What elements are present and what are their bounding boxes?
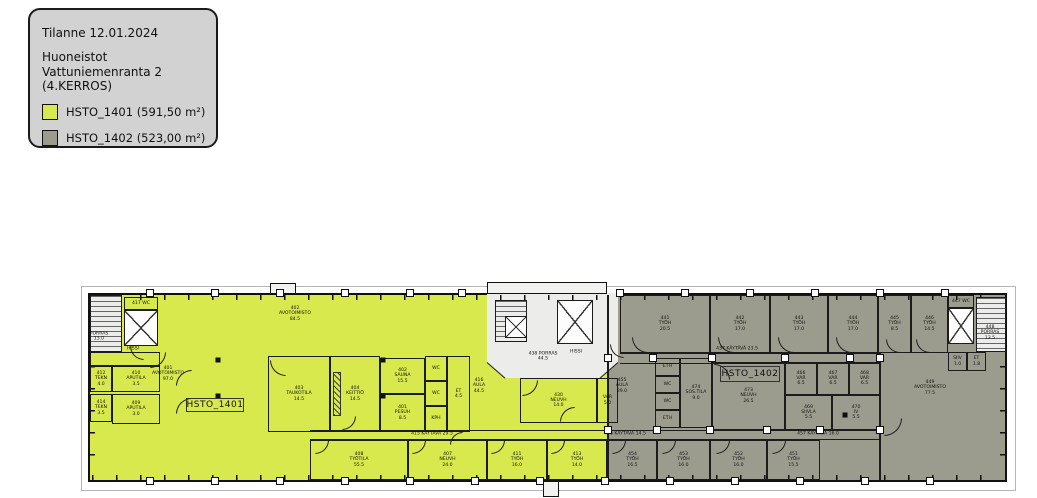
room: 444TYÖH17.0 [828, 295, 878, 353]
room: 443TYÖH17.0 [770, 295, 828, 353]
area-label: 448PORRAS13.5 [981, 325, 1000, 341]
status-date: Tilanne 12.01.2024 [42, 26, 216, 40]
area-label: 438 PORRAS44.5 [529, 352, 558, 363]
room-label: 417 WC [132, 301, 150, 306]
interior-column [216, 358, 221, 363]
room: SIIV1.0 [948, 352, 967, 371]
room-label: 6.5 [797, 381, 804, 386]
column-marker [926, 477, 934, 485]
legend-items: HSTO_1401 (591,50 m²)HSTO_1402 (523,00 m… [42, 104, 216, 146]
room-label: 3.5 [97, 411, 104, 416]
room-label: 14.5 [924, 327, 934, 332]
area-label-line: 415 KÄYTÄVÄ 29.5 [411, 431, 453, 436]
interior-column [381, 358, 386, 363]
room-label: 17.0 [848, 327, 858, 332]
room: 401PESUH8.5 [380, 394, 425, 432]
room [124, 310, 158, 346]
room-label: 3.0 [132, 412, 139, 417]
legend-item-label: HSTO_1401 (591,50 m²) [66, 105, 205, 119]
column-marker [876, 426, 884, 434]
room-label: 5.5 [852, 415, 859, 420]
room: 469SIIVLA5.5 [785, 395, 832, 430]
column-marker [811, 289, 819, 297]
room-label: 16.5 [627, 463, 637, 468]
room: ET4.5 [447, 356, 470, 432]
room: ET1.8 [967, 352, 986, 371]
room: 470IV5.5 [832, 395, 880, 430]
room: 414TEKN3.5 [90, 394, 112, 422]
interior-column [381, 394, 386, 399]
column-marker [211, 289, 219, 297]
room: ETH [655, 358, 680, 376]
room: WC [655, 376, 680, 393]
room: 409APUTILA3.0 [112, 394, 160, 424]
room-label: 17.0 [794, 327, 804, 332]
column-marker [471, 477, 479, 485]
floor-plan-page: Tilanne 12.01.2024 Huoneistot Vattunieme… [0, 0, 1037, 498]
column-marker [708, 354, 716, 362]
room-label: WC [664, 382, 672, 387]
room-label: 55.5 [354, 463, 364, 468]
column-marker [341, 477, 349, 485]
column-marker [146, 289, 154, 297]
legend-item-label: HSTO_1402 (523,00 m²) [66, 131, 205, 145]
area-label: 455AULA29.0 [616, 378, 628, 394]
column-marker [604, 426, 612, 434]
column-marker [406, 477, 414, 485]
area-label-line: HISSI [570, 349, 582, 354]
column-marker [781, 354, 789, 362]
column-marker [276, 477, 284, 485]
room-label: 16.0 [733, 463, 743, 468]
room-label: WC [432, 391, 440, 396]
column-marker [653, 426, 661, 434]
column-marker [649, 354, 657, 362]
entrance-stub [543, 481, 559, 497]
room-label: 4.5 [455, 394, 462, 399]
area-label-line: 84.5 [279, 317, 311, 322]
room-label: 15.5 [788, 463, 798, 468]
legend-item-HSTO_1401: HSTO_1401 (591,50 m²) [42, 104, 216, 120]
column-marker [763, 426, 771, 434]
area-label-line: AULA [616, 383, 628, 388]
column-marker [601, 477, 609, 485]
room: 412TEKN4.0 [90, 366, 112, 392]
room: WC [425, 356, 447, 381]
room-label: 15.5 [397, 379, 407, 384]
legend-spacer [42, 40, 216, 50]
area-label: HISSI [570, 349, 582, 354]
room: 467VAR6.5 [817, 362, 849, 395]
legend-title-line-1: Huoneistot [42, 50, 216, 64]
room-label: 5.5 [805, 415, 812, 420]
room [948, 308, 974, 344]
room-label: 24.0 [442, 463, 452, 468]
room: 447 WC [948, 295, 974, 308]
room [557, 300, 593, 344]
area-label-line: 13.5 [981, 336, 1000, 341]
room: 417 WC [124, 297, 158, 310]
room-label: WC [432, 366, 440, 371]
column-marker [211, 477, 219, 485]
room: WC [655, 393, 680, 410]
room-label: 14.5 [350, 397, 360, 402]
area-label-line: 44.5 [529, 357, 558, 362]
room [90, 295, 122, 352]
column-marker [146, 477, 154, 485]
room-label: 8.5 [891, 327, 898, 332]
room-label: ETH [663, 416, 672, 421]
area-label-line: 44.5 [473, 389, 485, 394]
room: WC [425, 381, 447, 406]
column-marker [941, 289, 949, 297]
room-label: 5.0 [604, 401, 611, 406]
column-marker [458, 289, 466, 297]
column-marker [604, 354, 612, 362]
room-label: 20.5 [660, 327, 670, 332]
area-label: 402AVOTOIMISTO84.5 [279, 306, 311, 322]
legend-swatch [42, 130, 58, 146]
apartment-id-label: HSTO_1401 [186, 398, 244, 412]
area-label-line: 77.5 [914, 391, 946, 396]
room-label: 8.5 [399, 416, 406, 421]
apartment-id-label: HSTO_1402 [720, 366, 780, 382]
room: KPH [425, 406, 447, 432]
column-marker [276, 289, 284, 297]
room: 466VAR6.5 [785, 362, 817, 395]
legend-title-line-3: (4.KERROS) [42, 79, 216, 93]
area-label: 449AVOTOIMISTO77.5 [914, 380, 946, 396]
column-marker [796, 477, 804, 485]
room-label: 447 WC [952, 299, 970, 304]
room-label: 16.0 [512, 463, 522, 468]
column-marker [536, 477, 544, 485]
column-marker [681, 289, 689, 297]
column-marker [816, 426, 824, 434]
column-marker [876, 289, 884, 297]
column-marker [731, 477, 739, 485]
room [505, 316, 527, 338]
column-marker [876, 354, 884, 362]
room-label: 6.5 [829, 381, 836, 386]
roof-bump-core [487, 282, 607, 294]
room-label: 14.0 [572, 463, 582, 468]
area-label-line: AVOTOIMISTO [279, 311, 311, 316]
room-label: 1.8 [973, 362, 980, 367]
column-marker [616, 289, 624, 297]
room-label: 26.5 [743, 399, 753, 404]
room-label: ETH [663, 364, 672, 369]
room-label: 3.5 [132, 382, 139, 387]
room-label: 16.0 [678, 463, 688, 468]
room: 402SAUNA15.5 [380, 358, 425, 394]
column-marker [666, 477, 674, 485]
room-label: KPH [431, 416, 440, 421]
column-marker [746, 289, 754, 297]
area-label-line: 13.0 [90, 337, 109, 342]
column-marker [341, 289, 349, 297]
column-marker [406, 289, 414, 297]
room-label: 17.0 [735, 327, 745, 332]
room-label: 14.0 [553, 403, 563, 408]
column-marker [861, 477, 869, 485]
area-label-line: PORRAS [981, 330, 1000, 335]
area-label-line: AVOTOIMISTO [914, 385, 946, 390]
area-label: PORRAS13.0 [90, 332, 109, 343]
room-label: 4.0 [97, 382, 104, 387]
legend-title-line-2: Vattuniemenranta 2 [42, 65, 216, 79]
column-marker [706, 426, 714, 434]
column-marker [846, 354, 854, 362]
legend-box: Tilanne 12.01.2024 Huoneistot Vattunieme… [28, 8, 218, 148]
legend-swatch [42, 104, 58, 120]
area-label: 415 KÄYTÄVÄ 29.5 [411, 431, 453, 436]
room-label: 9.0 [692, 396, 699, 401]
area-label-line: 29.0 [616, 389, 628, 394]
corridor-1402-lower [608, 430, 880, 440]
area-label: 416AULA44.5 [473, 378, 485, 394]
room-label: 1.0 [954, 362, 961, 367]
room: 474SOS.TILA9.0 [680, 358, 712, 428]
room-label: 6.5 [861, 381, 868, 386]
room-label: WC [664, 399, 672, 404]
room: VAR5.0 [597, 378, 618, 423]
legend-item-HSTO_1402: HSTO_1402 (523,00 m²) [42, 130, 216, 146]
room-label: 14.5 [294, 397, 304, 402]
interior-column [843, 413, 848, 418]
area-label-line: AULA [473, 383, 485, 388]
room: 468VAR6.5 [849, 362, 880, 395]
